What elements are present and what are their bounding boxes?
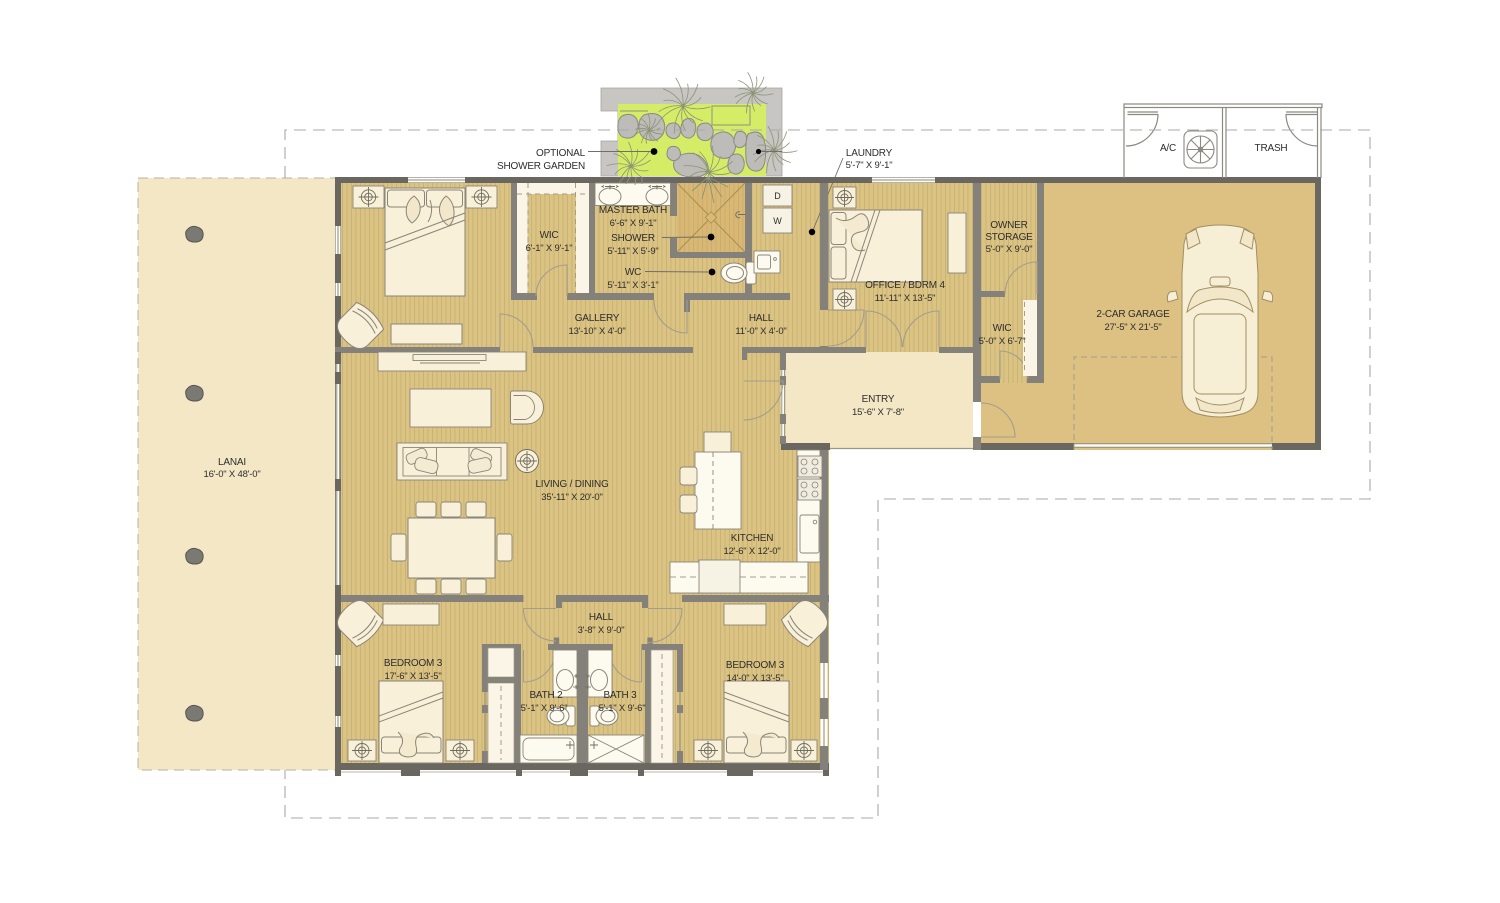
- svg-text:5'-0" X 6'-7": 5'-0" X 6'-7": [979, 336, 1026, 347]
- svg-text:OPTIONAL: OPTIONAL: [536, 148, 586, 159]
- svg-text:5'-1" X 9'-6": 5'-1" X 9'-6": [599, 703, 646, 714]
- svg-text:WC: WC: [625, 267, 641, 278]
- svg-text:5'-11" X 3'-1": 5'-11" X 3'-1": [607, 280, 658, 291]
- svg-text:LAUNDRY: LAUNDRY: [846, 148, 893, 159]
- svg-text:15'-6" X 7'-8": 15'-6" X 7'-8": [852, 407, 904, 418]
- svg-text:14'-0" X 13'-5": 14'-0" X 13'-5": [726, 673, 783, 684]
- svg-text:TRASH: TRASH: [1255, 143, 1288, 154]
- svg-text:WIC: WIC: [540, 230, 559, 241]
- svg-text:2-CAR GARAGE: 2-CAR GARAGE: [1096, 309, 1170, 320]
- svg-text:KITCHEN: KITCHEN: [731, 533, 774, 544]
- svg-text:LIVING / DINING: LIVING / DINING: [535, 479, 609, 490]
- svg-text:OWNER: OWNER: [990, 220, 1027, 231]
- svg-text:27'-5" X 21'-5": 27'-5" X 21'-5": [1104, 322, 1161, 333]
- svg-text:11'-11" X 13'-5": 11'-11" X 13'-5": [875, 293, 936, 304]
- svg-text:HALL: HALL: [749, 313, 774, 324]
- svg-text:5'-11" X 5'-9": 5'-11" X 5'-9": [607, 246, 658, 257]
- svg-text:MASTER BATH: MASTER BATH: [599, 205, 667, 216]
- svg-text:ENTRY: ENTRY: [862, 394, 895, 405]
- svg-text:11'-0" X 4'-0": 11'-0" X 4'-0": [735, 326, 786, 337]
- svg-text:SHOWER GARDEN: SHOWER GARDEN: [497, 161, 585, 172]
- svg-text:12'-6" X 12'-0": 12'-6" X 12'-0": [723, 546, 780, 557]
- svg-text:5'-0" X 9'-0": 5'-0" X 9'-0": [986, 244, 1033, 255]
- svg-text:13'-10" X 4'-0": 13'-10" X 4'-0": [568, 326, 625, 337]
- svg-text:5'-7" X 9'-1": 5'-7" X 9'-1": [846, 160, 893, 171]
- svg-text:16'-0" X 48'-0": 16'-0" X 48'-0": [203, 469, 260, 480]
- svg-text:W: W: [773, 216, 782, 226]
- svg-text:A/C: A/C: [1160, 143, 1176, 154]
- svg-text:6'-1" X 9'-1": 6'-1" X 9'-1": [526, 243, 573, 254]
- svg-text:WIC: WIC: [993, 323, 1012, 334]
- svg-text:5'-1" X 9'-6": 5'-1" X 9'-6": [521, 703, 568, 714]
- svg-text:LANAI: LANAI: [218, 457, 246, 468]
- svg-text:3'-8" X 9'-0": 3'-8" X 9'-0": [578, 625, 625, 636]
- svg-text:SHOWER: SHOWER: [611, 233, 655, 244]
- svg-text:BEDROOM 3: BEDROOM 3: [726, 660, 785, 671]
- svg-text:GALLERY: GALLERY: [575, 313, 620, 324]
- svg-text:STORAGE: STORAGE: [985, 232, 1033, 243]
- svg-text:35'-11" X 20'-0": 35'-11" X 20'-0": [541, 492, 602, 503]
- svg-text:BATH 2: BATH 2: [529, 690, 563, 701]
- svg-text:OFFICE / BDRM 4: OFFICE / BDRM 4: [865, 280, 945, 291]
- svg-text:D: D: [774, 191, 781, 201]
- svg-text:6'-6" X 9'-1": 6'-6" X 9'-1": [610, 218, 657, 229]
- svg-text:BATH 3: BATH 3: [603, 690, 637, 701]
- svg-text:17'-6" X 13'-5": 17'-6" X 13'-5": [384, 671, 441, 682]
- svg-text:HALL: HALL: [589, 612, 614, 623]
- svg-text:BEDROOM 3: BEDROOM 3: [384, 658, 443, 669]
